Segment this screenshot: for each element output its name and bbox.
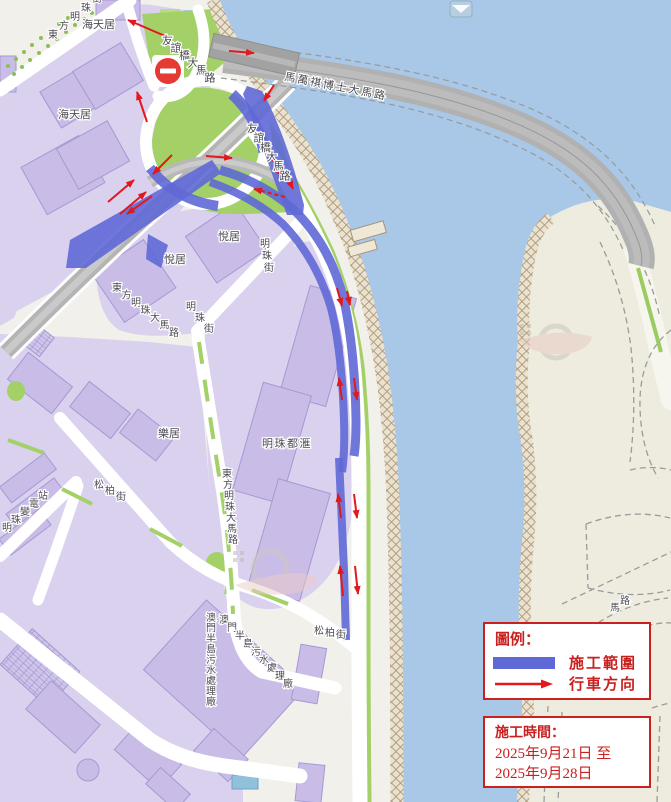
traffic-direction-label: 行車方向 xyxy=(569,673,637,694)
map-label: 悅居 xyxy=(218,229,240,243)
map-label: 悅居 xyxy=(164,252,186,266)
schedule-box: 施工時間： 2025年9月21日 至 2025年9月28日 xyxy=(483,716,651,788)
schedule-line1: 2025年9月21日 至 xyxy=(495,744,641,764)
legend-title: 圖例： xyxy=(495,628,641,649)
map-label: 海天居 xyxy=(82,17,115,31)
map-label: 樂居 xyxy=(158,426,180,440)
schedule-title: 施工時間： xyxy=(495,722,641,742)
construction-area-swatch xyxy=(493,657,555,669)
legend-box: 圖例： 施工範圍 行車方向 xyxy=(483,622,651,700)
construction-notice-map: 東方明珠街海天居海天居友誼橋大馬路友誼橋大馬路馬萬祺博士大馬路悅居悅居明珠街東方… xyxy=(0,0,671,802)
map-label: 明珠都滙 xyxy=(262,436,312,450)
map-label: 澳門半島污水處理廠 xyxy=(206,611,216,708)
direction-arrow-icon xyxy=(493,678,555,690)
construction-area-label: 施工範圍 xyxy=(569,652,637,673)
map-label: 海天居 xyxy=(58,107,91,121)
schedule-line2: 2025年9月28日 xyxy=(495,764,641,784)
bridge-badge-icon xyxy=(450,1,472,17)
